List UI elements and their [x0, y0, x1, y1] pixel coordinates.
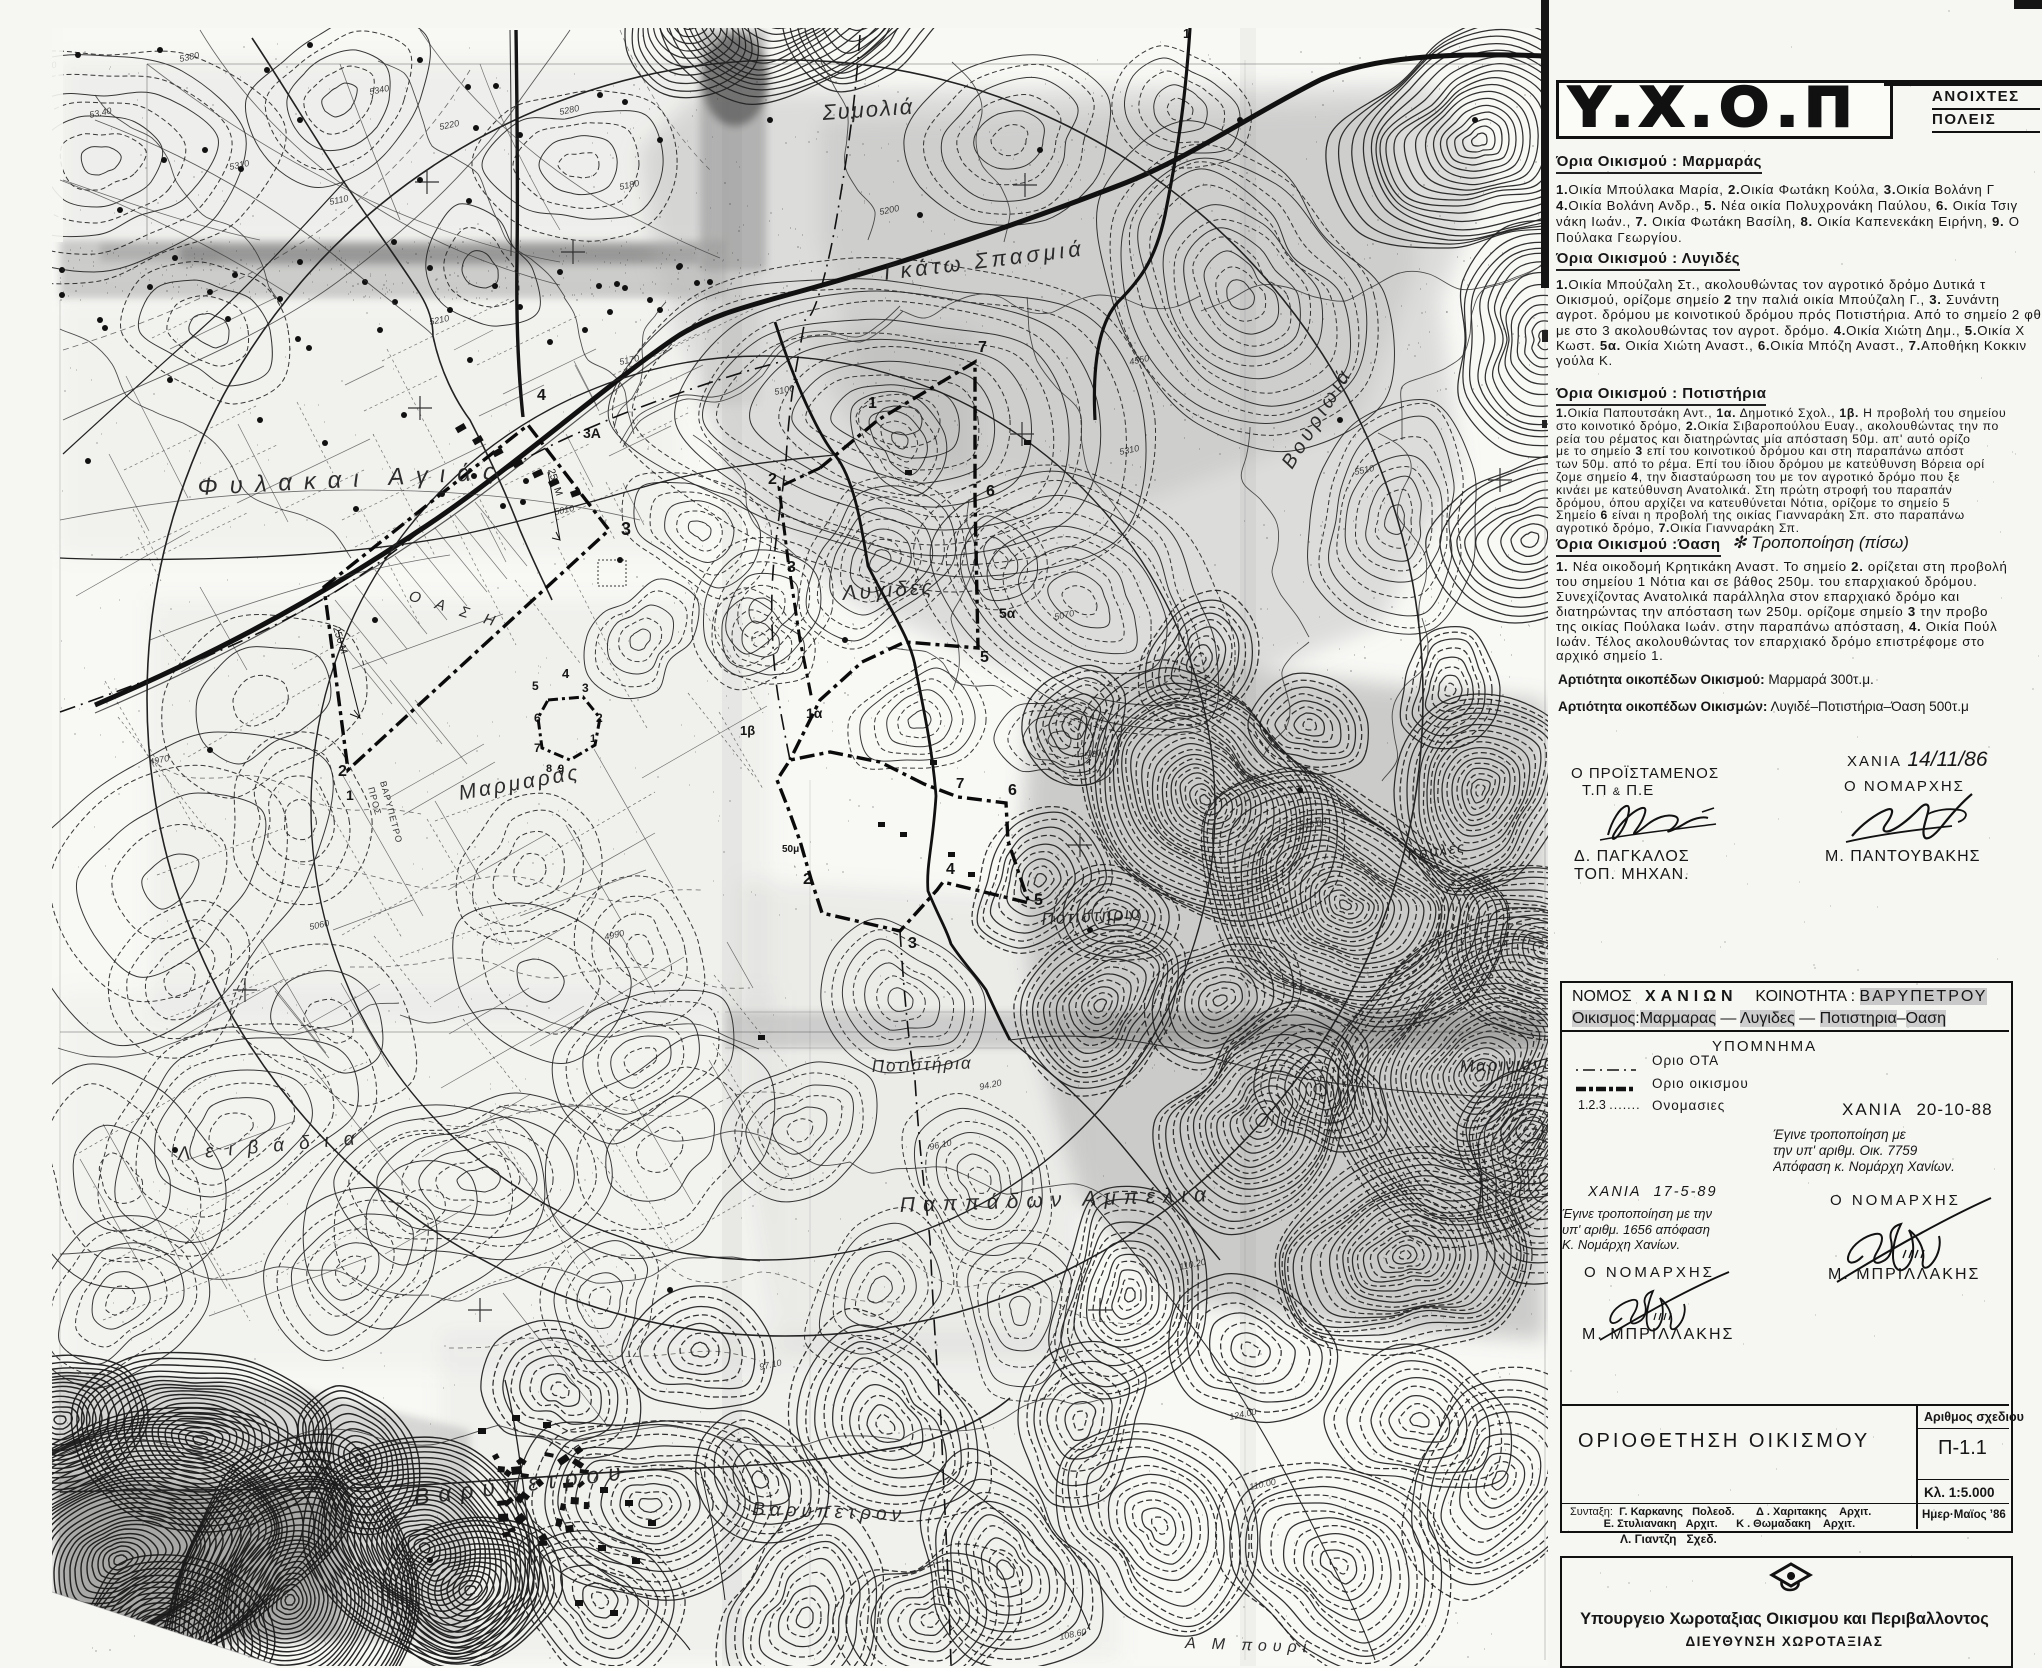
- svg-text:6: 6: [1008, 782, 1017, 799]
- svg-text:1: 1: [346, 787, 354, 803]
- svg-text:2: 2: [768, 471, 777, 488]
- svg-text:7: 7: [978, 339, 987, 356]
- svg-text:2: 2: [803, 871, 812, 888]
- svg-text:3: 3: [582, 681, 589, 695]
- svg-text:5: 5: [532, 679, 539, 693]
- svg-text:4: 4: [537, 387, 546, 404]
- svg-text:6: 6: [534, 711, 541, 725]
- svg-text:4: 4: [946, 861, 955, 878]
- svg-text:5α: 5α: [999, 605, 1016, 621]
- svg-text:6: 6: [986, 483, 995, 500]
- svg-text:1: 1: [868, 395, 877, 412]
- svg-text:Μαρινιανά: Μαρινιανά: [1459, 1054, 1555, 1076]
- svg-text:Ποτιστήρια: Ποτιστήρια: [871, 1053, 973, 1076]
- svg-text:9: 9: [558, 763, 564, 775]
- svg-text:2: 2: [338, 763, 347, 780]
- svg-text:7: 7: [956, 775, 964, 792]
- svg-text:3: 3: [787, 559, 796, 576]
- svg-text:1α: 1α: [806, 705, 823, 721]
- svg-text:1: 1: [1183, 26, 1190, 41]
- svg-text:5: 5: [980, 649, 989, 666]
- svg-text:7: 7: [534, 741, 541, 755]
- svg-text:50μ: 50μ: [782, 844, 799, 855]
- svg-text:5: 5: [1034, 892, 1043, 909]
- svg-text:4: 4: [562, 666, 570, 681]
- svg-text:1: 1: [590, 733, 596, 745]
- svg-text:1β: 1β: [740, 723, 755, 738]
- svg-text:2: 2: [596, 711, 603, 725]
- svg-text:3Α: 3Α: [583, 425, 601, 441]
- svg-text:3: 3: [621, 519, 631, 539]
- svg-text:8: 8: [546, 763, 552, 775]
- svg-text:3: 3: [908, 935, 917, 952]
